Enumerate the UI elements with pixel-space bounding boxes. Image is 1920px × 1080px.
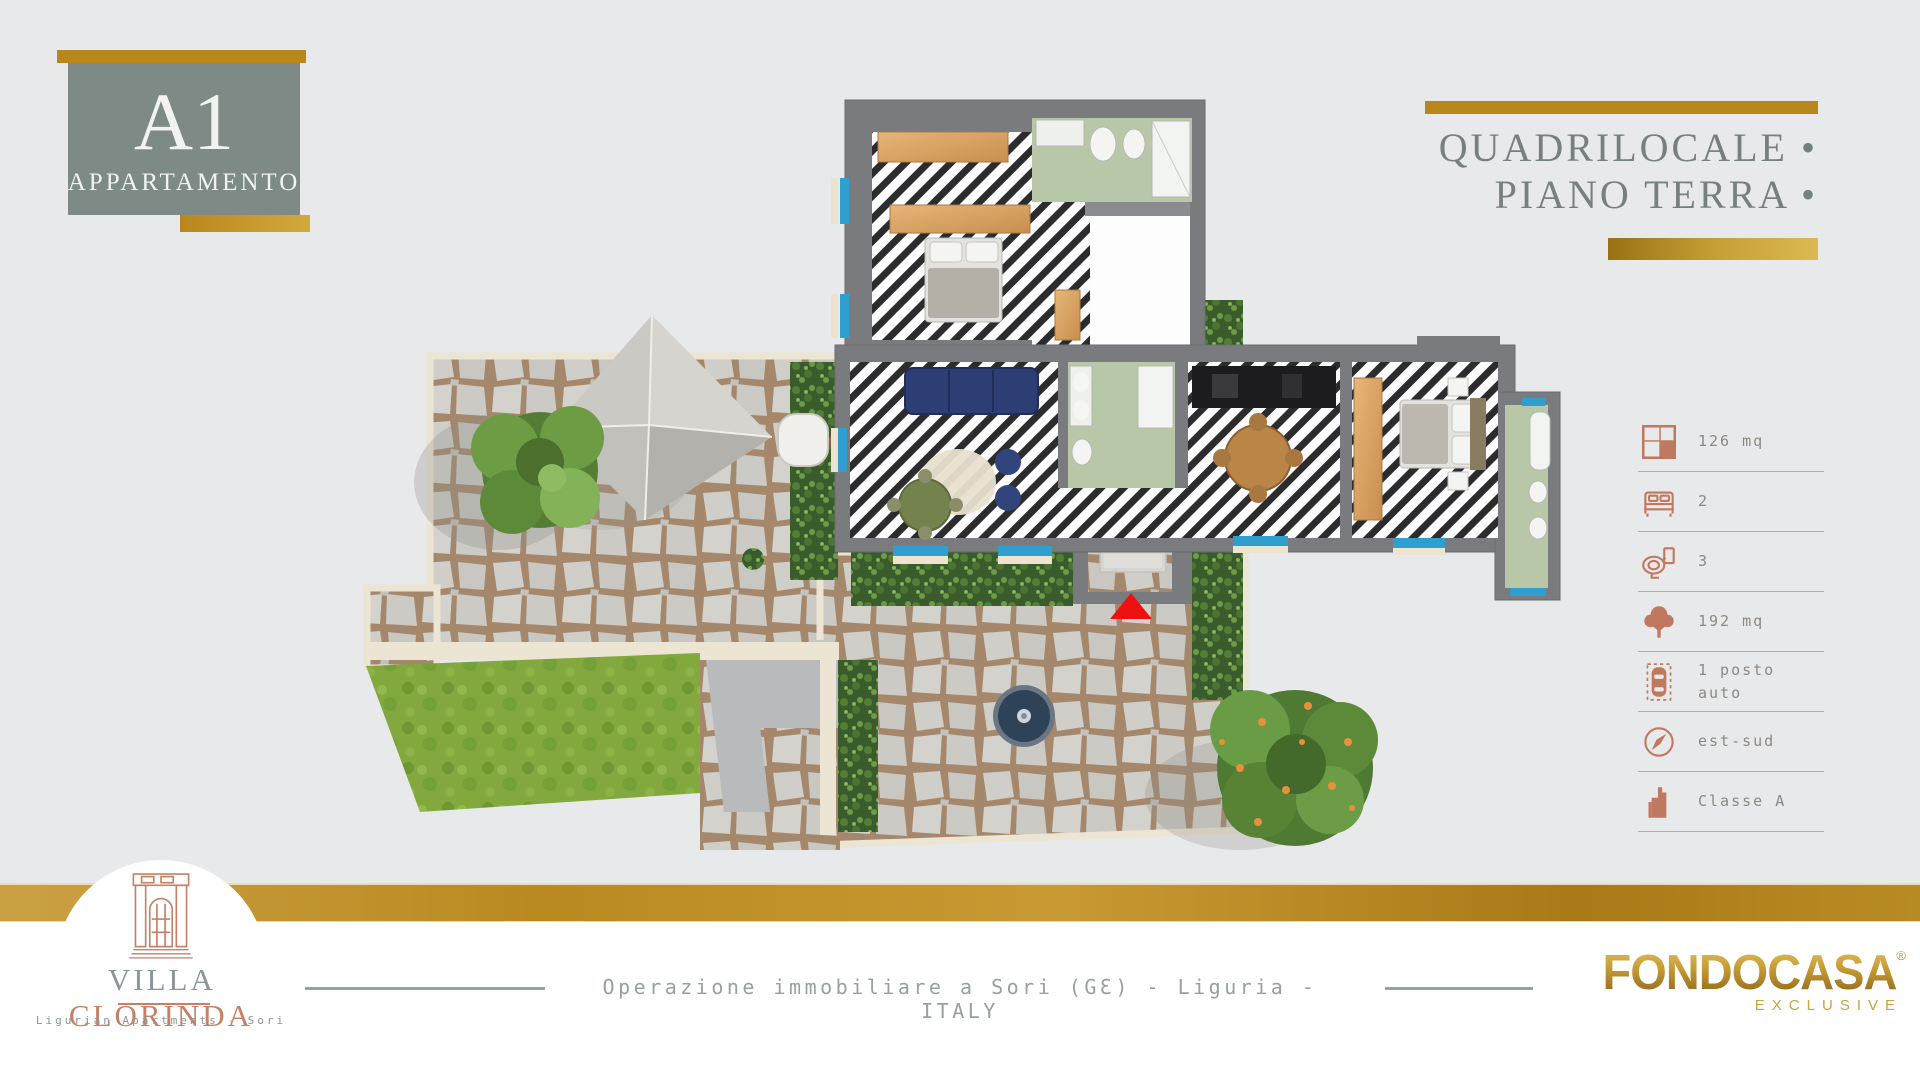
brochure-page: A1 APPARTAMENTO QUADRILOCALE • PIANO TER… bbox=[0, 0, 1920, 1080]
title-gold-bar-bottom bbox=[1608, 238, 1818, 260]
spec-label: 2 bbox=[1698, 490, 1709, 513]
parking-icon bbox=[1638, 661, 1684, 703]
spec-row-bedrooms: 2 bbox=[1638, 472, 1824, 532]
toilet-icon bbox=[1638, 541, 1684, 583]
area-icon bbox=[1638, 421, 1684, 463]
villa-name-primary: VILLA bbox=[108, 962, 214, 997]
page-title: QUADRILOCALE • PIANO TERRA • bbox=[1260, 124, 1818, 218]
apartment-badge: A1 APPARTAMENTO bbox=[68, 63, 300, 215]
title-line-2: PIANO TERRA • bbox=[1260, 171, 1818, 218]
spec-row-bathrooms: 3 bbox=[1638, 532, 1824, 592]
fondocasa-logo: FONDOCASA® EXCLUSIVE bbox=[1558, 948, 1906, 1014]
lawn bbox=[366, 653, 700, 812]
title-gold-bar-top bbox=[1425, 101, 1818, 114]
footer-gold-band bbox=[0, 883, 1920, 922]
spec-row-orientation: est-sud bbox=[1638, 712, 1824, 772]
footer-location-text: Operazione immobiliare a Sori (GƐ) - Lig… bbox=[560, 975, 1360, 1023]
spec-label: Classe A bbox=[1698, 790, 1786, 813]
bathroom-right bbox=[1505, 398, 1550, 596]
spec-row-parking: 1 posto auto bbox=[1638, 652, 1824, 712]
spec-row-area: 126 mq bbox=[1638, 412, 1824, 472]
spec-label: 126 mq bbox=[1698, 430, 1764, 453]
bathroom-top bbox=[1032, 118, 1192, 202]
apartment-code: A1 bbox=[134, 81, 234, 163]
bed-1 bbox=[925, 238, 1002, 322]
spec-label: est-sud bbox=[1698, 730, 1775, 753]
bed-icon bbox=[1638, 481, 1684, 523]
footer-divider-left bbox=[305, 987, 545, 990]
hedge bbox=[790, 362, 838, 580]
spec-row-energy: Classe A bbox=[1638, 772, 1824, 832]
registered-mark: ® bbox=[1896, 948, 1906, 963]
fondocasa-exclusive: EXCLUSIVE bbox=[1558, 997, 1906, 1014]
fountain bbox=[993, 685, 1055, 747]
badge-gold-bar-top bbox=[57, 50, 306, 63]
villa-underline bbox=[118, 1003, 210, 1005]
tree bbox=[471, 406, 604, 534]
spec-label: 1 posto auto bbox=[1698, 659, 1810, 704]
specs-panel: 126 mq 2 bbox=[1638, 412, 1824, 832]
spec-label: 3 bbox=[1698, 550, 1709, 573]
spec-row-garden: 192 mq bbox=[1638, 592, 1824, 652]
badge-gold-bar-bottom bbox=[180, 215, 310, 232]
fondocasa-name: FONDOCASA bbox=[1603, 947, 1897, 996]
footer-divider-right bbox=[1385, 987, 1533, 990]
compass-icon bbox=[1638, 721, 1684, 763]
energy-class-icon bbox=[1638, 781, 1684, 823]
sofa bbox=[905, 368, 1038, 414]
kitchen bbox=[1192, 366, 1336, 408]
spec-label: 192 mq bbox=[1698, 610, 1764, 633]
villa-tagline: Ligurian Apartments - Sori bbox=[20, 1014, 302, 1027]
apartment-label: APPARTAMENTO bbox=[68, 169, 301, 197]
villa-door-icon bbox=[124, 872, 198, 964]
garden-icon bbox=[1638, 601, 1684, 643]
title-line-1: QUADRILOCALE • bbox=[1260, 124, 1818, 171]
bathroom-center bbox=[1068, 362, 1175, 488]
